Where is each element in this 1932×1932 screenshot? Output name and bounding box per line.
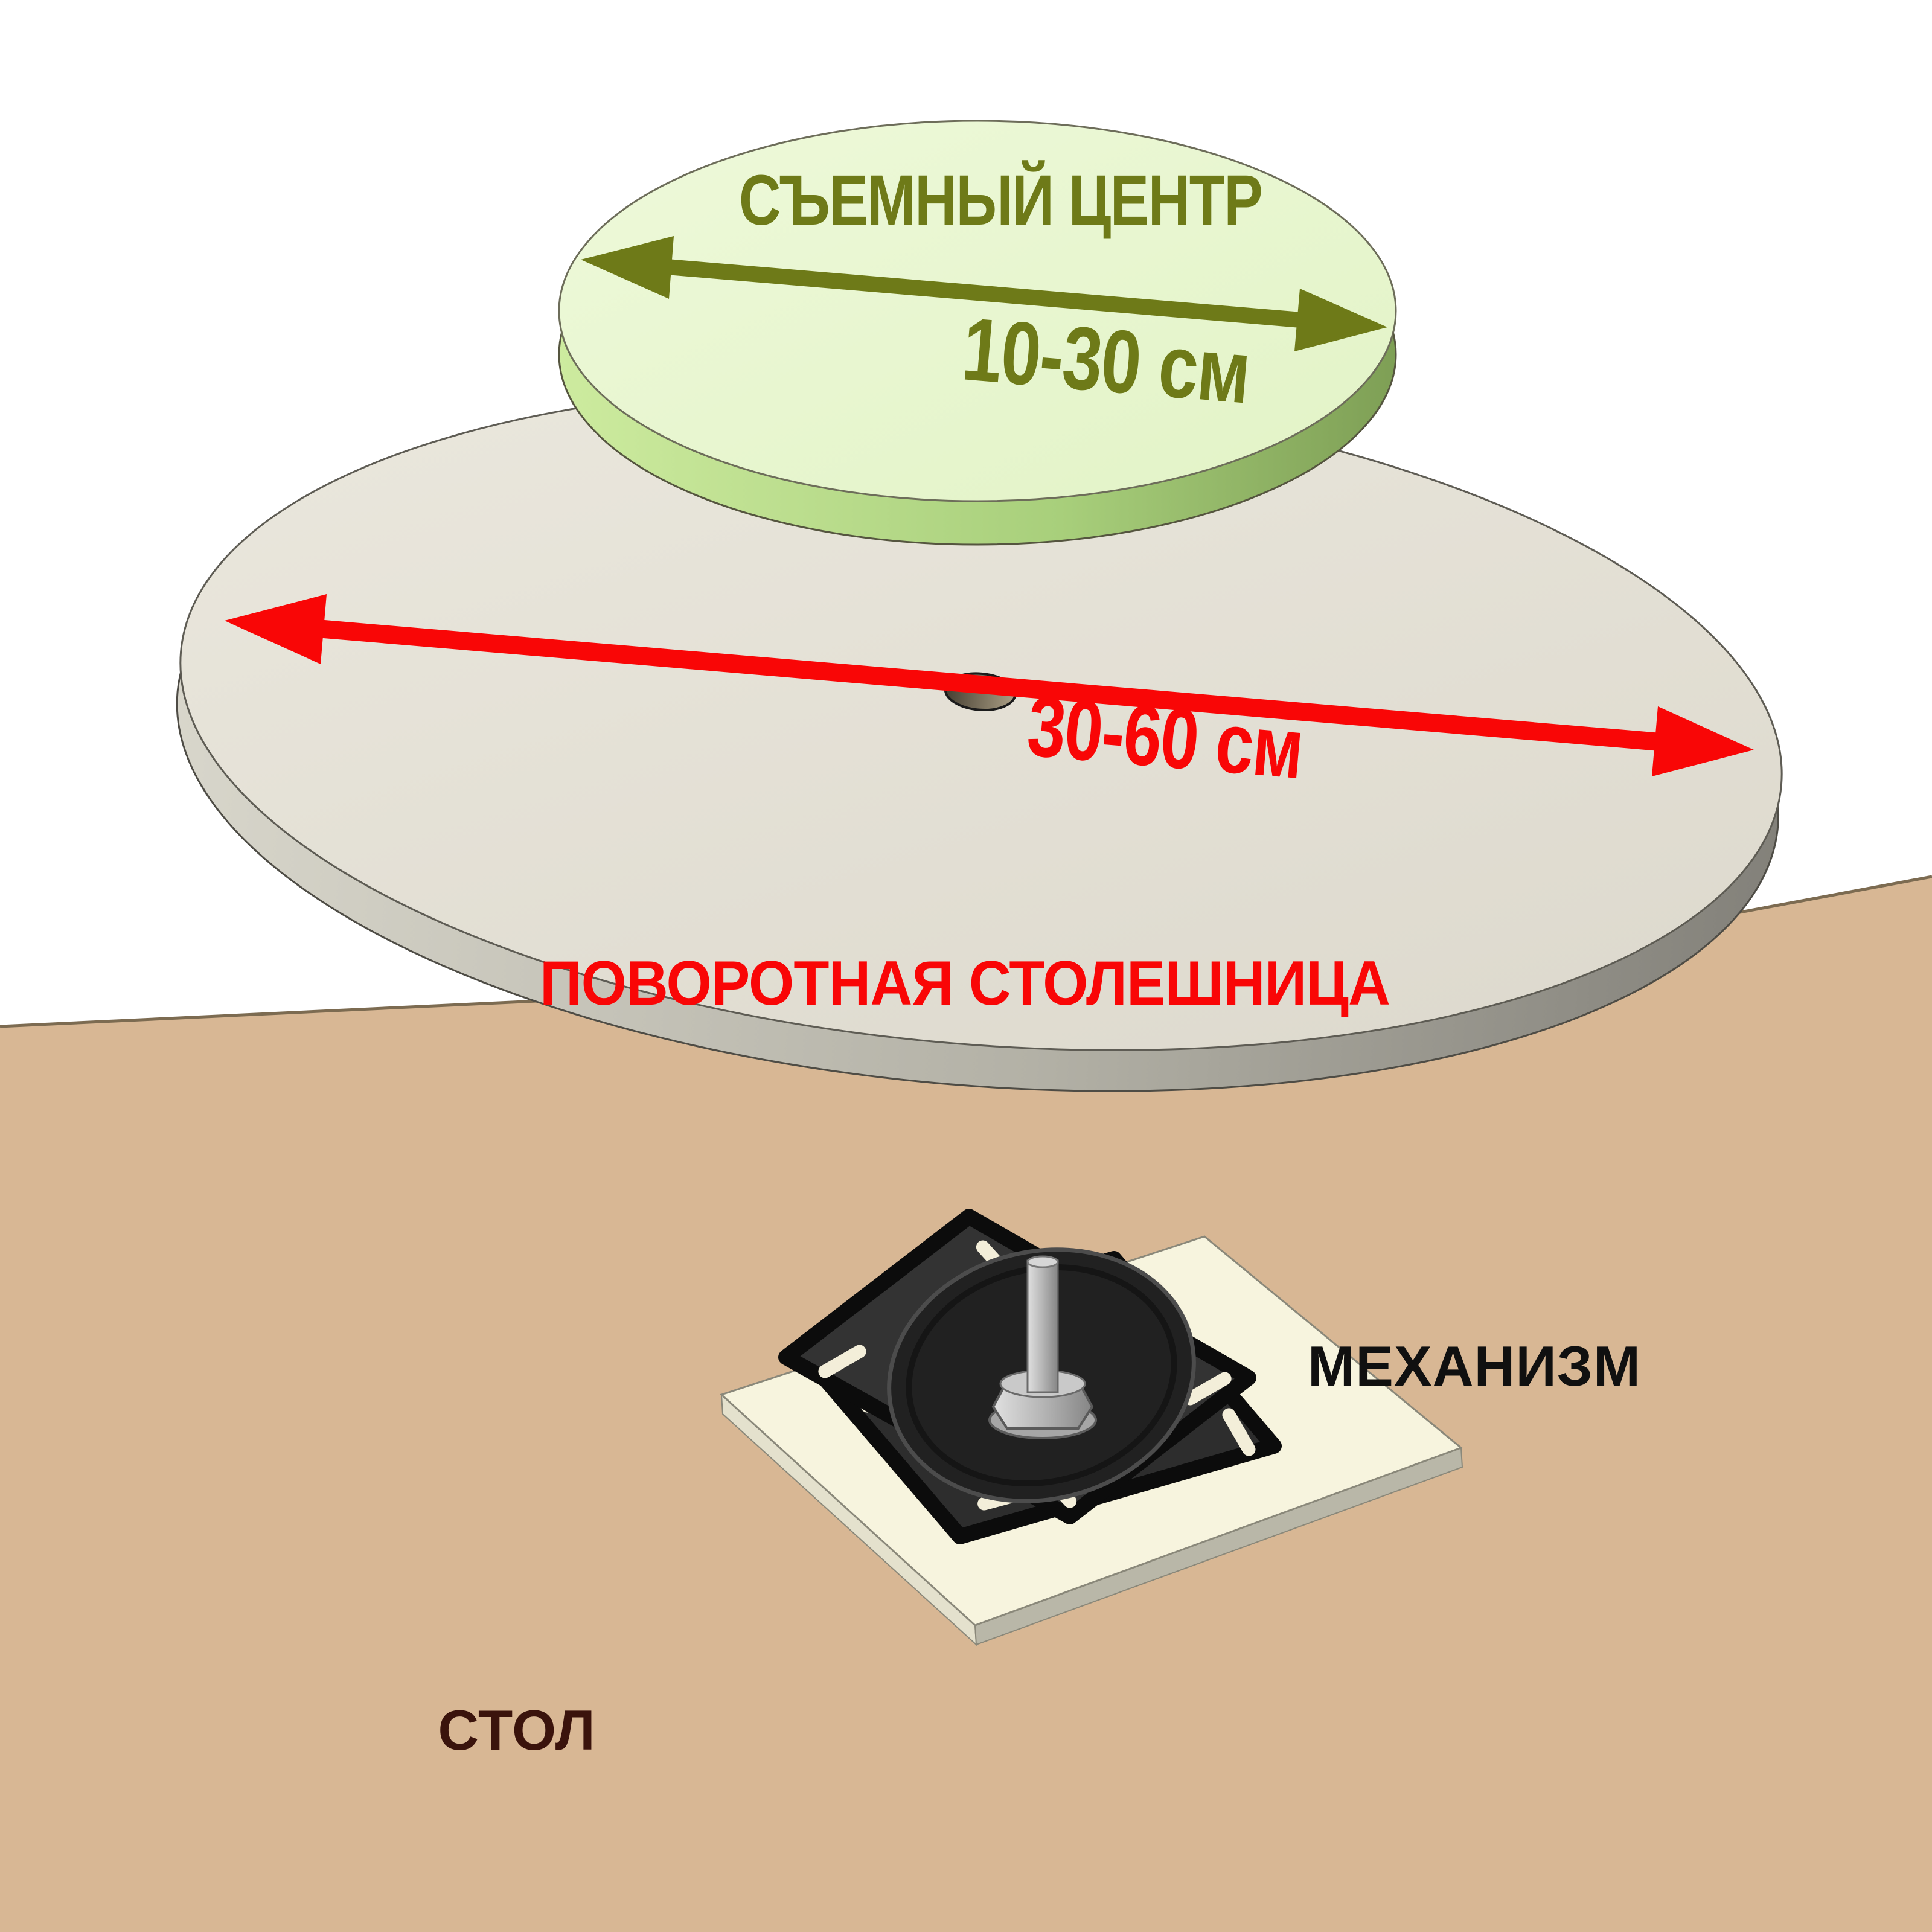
label-turntable: ПОВОРОТНАЯ СТОЛЕШНИЦА [540, 952, 1390, 1015]
label-mechanism: МЕХАНИЗМ [1308, 1338, 1641, 1395]
label-table: СТОЛ [438, 1702, 595, 1759]
diagram-canvas: СЪЕМНЫЙ ЦЕНТР 10-30 см 30-60 см ПОВОРОТН… [0, 0, 1932, 1932]
label-removable-center-diameter: 10-30 см [959, 304, 1253, 417]
label-turntable-diameter: 30-60 см [1025, 683, 1307, 792]
label-removable-center: СЪЕМНЫЙ ЦЕНТР [739, 165, 1262, 236]
